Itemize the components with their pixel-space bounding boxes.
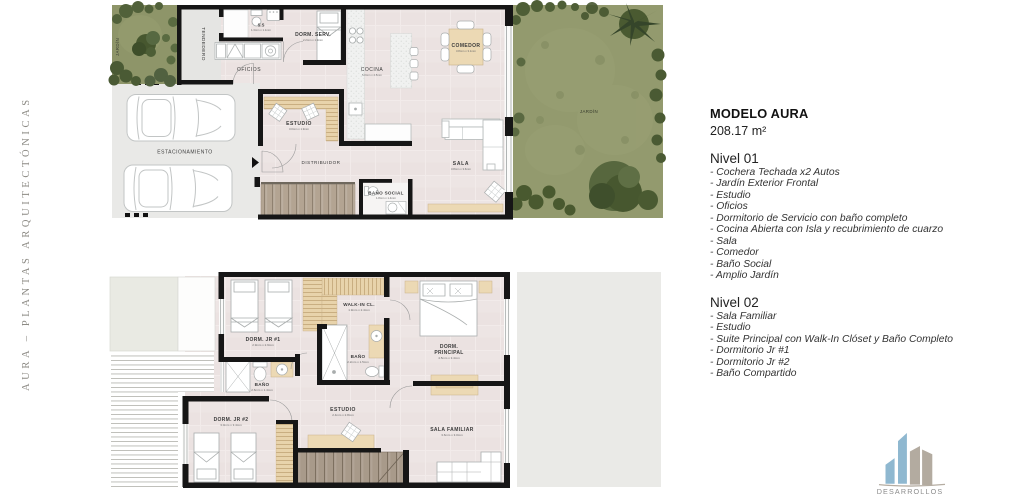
svg-text:BAÑO SOCIAL: BAÑO SOCIAL xyxy=(368,190,403,196)
svg-text:ESTACIONAMIENTO: ESTACIONAMIENTO xyxy=(157,150,212,156)
svg-text:1.9mm x 2.4mm: 1.9mm x 2.4mm xyxy=(348,308,370,312)
svg-text:2.6mm x 1.4mm: 2.6mm x 1.4mm xyxy=(251,388,273,392)
svg-text:BAÑO: BAÑO xyxy=(255,381,270,387)
svg-text:2.2mm x 1.5mm: 2.2mm x 1.5mm xyxy=(347,360,369,364)
svg-text:1.8mm x 1.4mm: 1.8mm x 1.4mm xyxy=(376,196,397,200)
svg-text:JARDÍN: JARDÍN xyxy=(115,38,120,56)
svg-text:TENDEDERO: TENDEDERO xyxy=(200,27,206,61)
svg-text:WALK-IN CL.: WALK-IN CL. xyxy=(343,302,375,307)
svg-text:DISTRIBUIDOR: DISTRIBUIDOR xyxy=(302,160,341,165)
svg-text:3.8mm x 3.6mm: 3.8mm x 3.6mm xyxy=(451,167,472,171)
svg-text:3.6mm x 3.0mm: 3.6mm x 3.0mm xyxy=(441,433,463,437)
svg-text:3.0mm x 1.9mm: 3.0mm x 1.9mm xyxy=(289,127,310,131)
svg-text:2.2mm x 1.9mm: 2.2mm x 1.9mm xyxy=(303,38,324,42)
svg-text:1.3mm x 1.1mm: 1.3mm x 1.1mm xyxy=(251,28,272,32)
svg-text:3.0mm x 3.4mm: 3.0mm x 3.4mm xyxy=(220,423,242,427)
svg-text:DESARROLLOS: DESARROLLOS xyxy=(877,487,944,494)
svg-text:5.0mm x 2.5mm: 5.0mm x 2.5mm xyxy=(362,73,383,77)
svg-text:4.5mm x 3.4mm: 4.5mm x 3.4mm xyxy=(438,356,460,360)
svg-text:JARDÍN: JARDÍN xyxy=(580,109,598,114)
svg-text:2.4mm x 2.8mm: 2.4mm x 2.8mm xyxy=(332,413,354,417)
svg-text:BAÑO: BAÑO xyxy=(351,353,366,359)
svg-text:3.8mm x 3.1mm: 3.8mm x 3.1mm xyxy=(456,49,477,53)
svg-text:S.S: S.S xyxy=(258,23,265,28)
svg-text:2.9mm x 2.9mm: 2.9mm x 2.9mm xyxy=(252,343,274,347)
